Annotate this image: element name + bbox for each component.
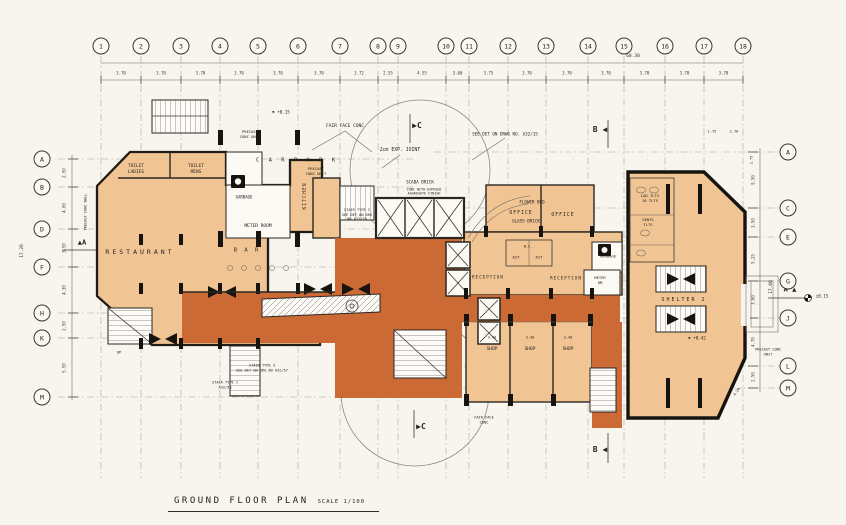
column-dim-label: 3.70	[601, 70, 611, 75]
label-see-det-note: SEE DET ON DRWG NO. A32/15	[472, 131, 538, 136]
grid-column-bubble: 1	[93, 38, 110, 55]
row-dim-label-left: 2.50	[61, 168, 66, 178]
shelter-wing	[628, 172, 745, 418]
label-office-2: OFFICE	[551, 213, 574, 219]
grid-row-bubble-left: D	[34, 221, 51, 238]
row-dim-label-right: 5.25	[750, 254, 755, 264]
column-dim-label: 3.72	[354, 70, 364, 75]
section-marker-b-bottom: B ◀	[593, 445, 607, 455]
section-marker-a-left: ▲A	[78, 238, 86, 247]
row-dim-label-right: 2.50	[750, 372, 755, 382]
grid-column-bubble: 7	[332, 38, 349, 55]
column-dim-label: 3.60	[453, 70, 463, 75]
column-dim-label: 3.70	[680, 70, 690, 75]
grid-row-bubble-left: K	[34, 330, 51, 347]
grid-row-bubble-right: M	[780, 380, 797, 397]
shelter-stair-1	[656, 266, 706, 292]
label-shop-1: SHOP	[487, 347, 498, 353]
column-dim-label: 4.55	[417, 70, 427, 75]
grid-row-bubble-right: C	[780, 200, 797, 217]
grid-column-bubble: 5	[250, 38, 267, 55]
label-toilet-mens: TOILET MENS	[188, 164, 204, 176]
label-flower-bed: FLOWER BED	[519, 199, 544, 204]
label-office-1: OFFICE	[509, 211, 532, 217]
label-stair-type3-note: STAIR TYPE 3 SEE DET ON DRG NO A32/57	[236, 363, 288, 372]
stair-top-left	[152, 100, 208, 133]
stair-bottom-left	[108, 308, 152, 344]
ground-floor-plan-sheet: GROUND FLOOR PLANSCALE 1/100 60.30 17.20…	[0, 0, 846, 525]
grid-column-bubble: 16	[657, 38, 674, 55]
label-toilet-ladies: TOILET LADIES	[128, 164, 144, 176]
column-dim-label: 3.70	[196, 70, 206, 75]
column-dim-label: 3.70	[314, 70, 324, 75]
label-shop-dim-1: 3.40	[488, 336, 496, 341]
level-marker-2: ⚑ +0.42	[688, 335, 706, 340]
label-precast-conc-top2: PRECAST CONC UNIT	[306, 167, 327, 177]
grid-row-bubble-right: E	[780, 229, 797, 246]
column-dim-label: 3.70	[719, 70, 729, 75]
row-dim-label-left: 2.50	[61, 321, 66, 331]
column-dim-label: 2.55	[383, 70, 393, 75]
label-shelter: SHELTER 2	[661, 297, 706, 304]
dim-1-75: 1.75	[708, 130, 717, 135]
column-dim-label: 3.70	[562, 70, 572, 75]
label-precast-conc-top: PRECAST CONC UNIT	[240, 130, 261, 140]
grid-row-bubble-left: M	[34, 389, 51, 406]
label-precast-conc-right: PRECAST CONC UNIT	[755, 347, 781, 356]
grid-row-bubble-left: A	[34, 151, 51, 168]
center-room-strip	[313, 178, 340, 238]
label-stair-type2-note: STAIR TYPE 2 SEE DET ON DRG NO A32/59	[342, 208, 372, 222]
grid-column-bubble: 6	[290, 38, 307, 55]
drawing-scale: SCALE 1/100	[318, 499, 365, 505]
label-bar: B A R	[234, 247, 261, 254]
label-shop-dim-3: 3.40	[564, 336, 572, 341]
label-car-park: C A R P A R K	[256, 157, 338, 164]
label-kitchen: KITCHEN	[303, 182, 309, 209]
column-dim-label: 3.70	[273, 70, 283, 75]
grid-column-bubble: 8	[370, 38, 387, 55]
grid-column-bubble: 10	[438, 38, 455, 55]
label-exp-joint: 2cm EXP. JOINT	[380, 148, 420, 154]
grid-row-bubble-left: H	[34, 305, 51, 322]
label-garbage-left: GARBAGE	[236, 194, 253, 199]
meter-room	[226, 185, 290, 238]
section-marker-c-top: ▶C	[412, 121, 422, 131]
label-up: UP	[117, 351, 122, 356]
label-glass-brick: GLASS BRICK	[512, 218, 540, 223]
level-marker-3: ±0.15	[816, 293, 829, 298]
stair-right	[590, 368, 616, 412]
label-gents-tlts: GENTS TLTS	[642, 218, 653, 228]
section-marker-b-top: B ◀	[593, 125, 607, 135]
label-stair-type1-note: STAIR TYPE 1 A32/58	[212, 380, 238, 389]
elevator-bank	[376, 198, 464, 238]
right-total-dim: 17.00	[769, 280, 775, 294]
grid-row-bubble-right: A	[780, 144, 797, 161]
row-dim-label-left: 5.50	[61, 363, 66, 373]
row-dim-label-left: 4.00	[61, 203, 66, 213]
label-shop-dim-2: 3.40	[526, 336, 534, 341]
grid-column-bubble: 14	[580, 38, 597, 55]
shelter-door-gap	[741, 284, 750, 326]
column-dim-label: 3.70	[234, 70, 244, 75]
grid-column-bubble: 11	[461, 38, 478, 55]
label-meter-rm: METER RM	[594, 276, 605, 286]
row-dim-label-right: 3.60	[750, 295, 755, 305]
row-dim-label-right: 9.50	[750, 175, 755, 185]
label-shop-3: SHOP	[563, 347, 574, 353]
shelter-stair-2	[656, 306, 706, 332]
label-wc: W.C.	[524, 245, 532, 250]
row-dim-label-left: 4.30	[61, 285, 66, 295]
grid-row-bubble-left: F	[34, 259, 51, 276]
grid-column-bubble: 13	[538, 38, 555, 55]
grid-row-bubble-right: L	[780, 358, 797, 375]
total-width-dim: 60.30	[626, 54, 640, 60]
label-reception-1: RECEPTION	[472, 274, 504, 279]
level-marker-1: ⚑ +0.15	[272, 109, 290, 114]
row-dim-label-right: 4.70	[750, 337, 755, 347]
drawing-title-block: GROUND FLOOR PLANSCALE 1/100	[168, 488, 379, 512]
dim-2-70: 2.70	[730, 130, 739, 135]
dim-2-75: 2.75	[750, 156, 755, 164]
section-marker-c-bottom: ▶C	[416, 422, 426, 432]
grid-row-bubble-right: J	[780, 310, 797, 327]
column-dim-label: 3.75	[484, 70, 494, 75]
grid-row-bubble-right: G	[780, 273, 797, 290]
column-dim-label: 3.70	[156, 70, 166, 75]
row-dim-label-left: 3.50	[61, 243, 66, 253]
grid-column-bubble: 17	[696, 38, 713, 55]
row-dim-label-right: 3.50	[750, 218, 755, 228]
label-fair-face-conc-top: FAIR FACE CONC	[326, 124, 364, 130]
label-precast-conc-wall-left: PRECAST CONC WALL	[84, 194, 89, 231]
label-scaba-brick: SCABA BRICK	[406, 179, 434, 184]
grid-column-bubble: 4	[212, 38, 229, 55]
column-dim-label: 3.70	[640, 70, 650, 75]
column-dim-label: 3.70	[522, 70, 532, 75]
label-shop-2: SHOP	[525, 347, 536, 353]
grid-column-bubble: 3	[173, 38, 190, 55]
label-garbage-right: GARBAGE	[600, 255, 616, 260]
label-fair-face-conc-bottom: FAIR FACE CONC	[474, 415, 493, 424]
column-dim-label: 3.70	[116, 70, 126, 75]
left-total-dim: 17.20	[20, 244, 26, 258]
label-reception-2: RECEPTION	[550, 275, 582, 280]
grid-column-bubble: 15	[616, 38, 633, 55]
label-kit-1: KIT	[513, 256, 520, 261]
offices-block	[486, 185, 594, 232]
label-restaurant: RESTAURANT	[105, 248, 174, 256]
grid-column-bubble: 9	[390, 38, 407, 55]
label-exposed-aggregate: CONC WITH EXPOSED AGGREGATE FINISH	[407, 188, 442, 197]
stair-lobby	[394, 330, 446, 378]
grid-column-bubble: 18	[735, 38, 752, 55]
plan-drawing	[0, 0, 846, 525]
grid-column-bubble: 12	[500, 38, 517, 55]
drawing-title: GROUND FLOOR PLAN	[174, 496, 309, 506]
label-kit-2: KIT	[536, 256, 543, 261]
label-meter-room: METER ROOM	[244, 224, 271, 230]
grid-row-bubble-left: B	[34, 179, 51, 196]
label-lad-tlts: LAD TLTS 10 TLTS	[641, 194, 659, 204]
grid-column-bubble: 2	[133, 38, 150, 55]
